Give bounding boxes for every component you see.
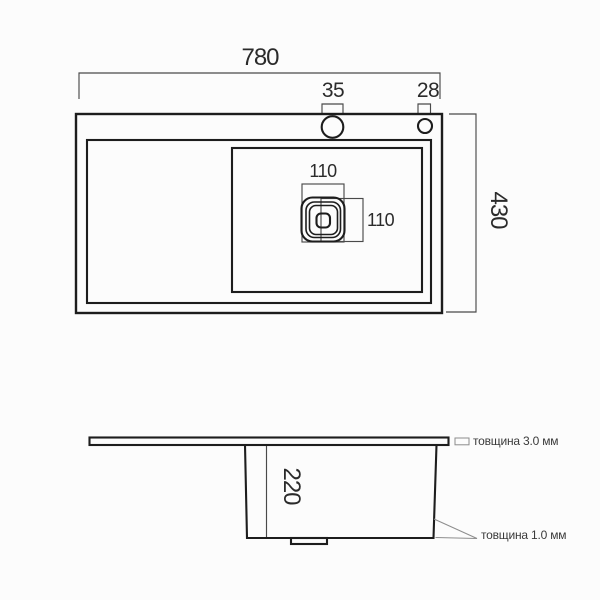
- dimension-label-28: 28: [417, 79, 439, 102]
- annotation-wall-thickness: товщина 1.0 мм: [434, 519, 566, 542]
- sink-top-view: 780 35 28 110 110: [76, 44, 512, 313]
- dimension-label-220: 220: [278, 467, 305, 505]
- dimension-bracket-35: [322, 104, 343, 114]
- dimension-label-780: 780: [241, 44, 279, 71]
- annotation-rim-thickness: товщина 3.0 мм: [455, 434, 558, 448]
- dimension-label-430: 430: [485, 191, 512, 229]
- dimension-bracket-780: [79, 73, 440, 99]
- drain-stub: [291, 538, 327, 544]
- wall-thickness-leader: [434, 519, 477, 539]
- dimension-bracket-28: [418, 104, 431, 114]
- rim-thickness-label: товщина 3.0 мм: [473, 434, 558, 448]
- drawing-canvas: 780 35 28 110 110: [0, 0, 600, 600]
- rim-thickness-symbol: [455, 438, 469, 445]
- drain: [302, 198, 345, 242]
- dimension-bowl-depth: 220: [267, 446, 306, 537]
- bowl-profile: [245, 445, 437, 538]
- dimension-bracket-430: [446, 114, 476, 312]
- technical-drawing: 780 35 28 110 110: [0, 0, 600, 600]
- dimension-label-drain-width: 110: [309, 161, 337, 181]
- rim-plate: [90, 438, 449, 446]
- dimension-faucet-hole-small: 28: [417, 79, 439, 114]
- dimension-label-drain-height: 110: [367, 210, 395, 230]
- dimension-overall-width: 780: [79, 44, 440, 99]
- drain-inner-ring: [310, 206, 338, 235]
- wall-thickness-label: товщина 1.0 мм: [481, 528, 566, 542]
- faucet-hole-small: [418, 119, 432, 133]
- sink-side-view: 220 товщина 3.0 мм товщина 1.0 мм: [90, 434, 567, 544]
- faucet-hole-large: [322, 116, 344, 138]
- dimension-overall-depth: 430: [446, 114, 512, 312]
- drain-hole: [317, 214, 331, 228]
- dimension-faucet-hole-large: 35: [322, 79, 344, 114]
- dimension-label-35: 35: [322, 79, 344, 102]
